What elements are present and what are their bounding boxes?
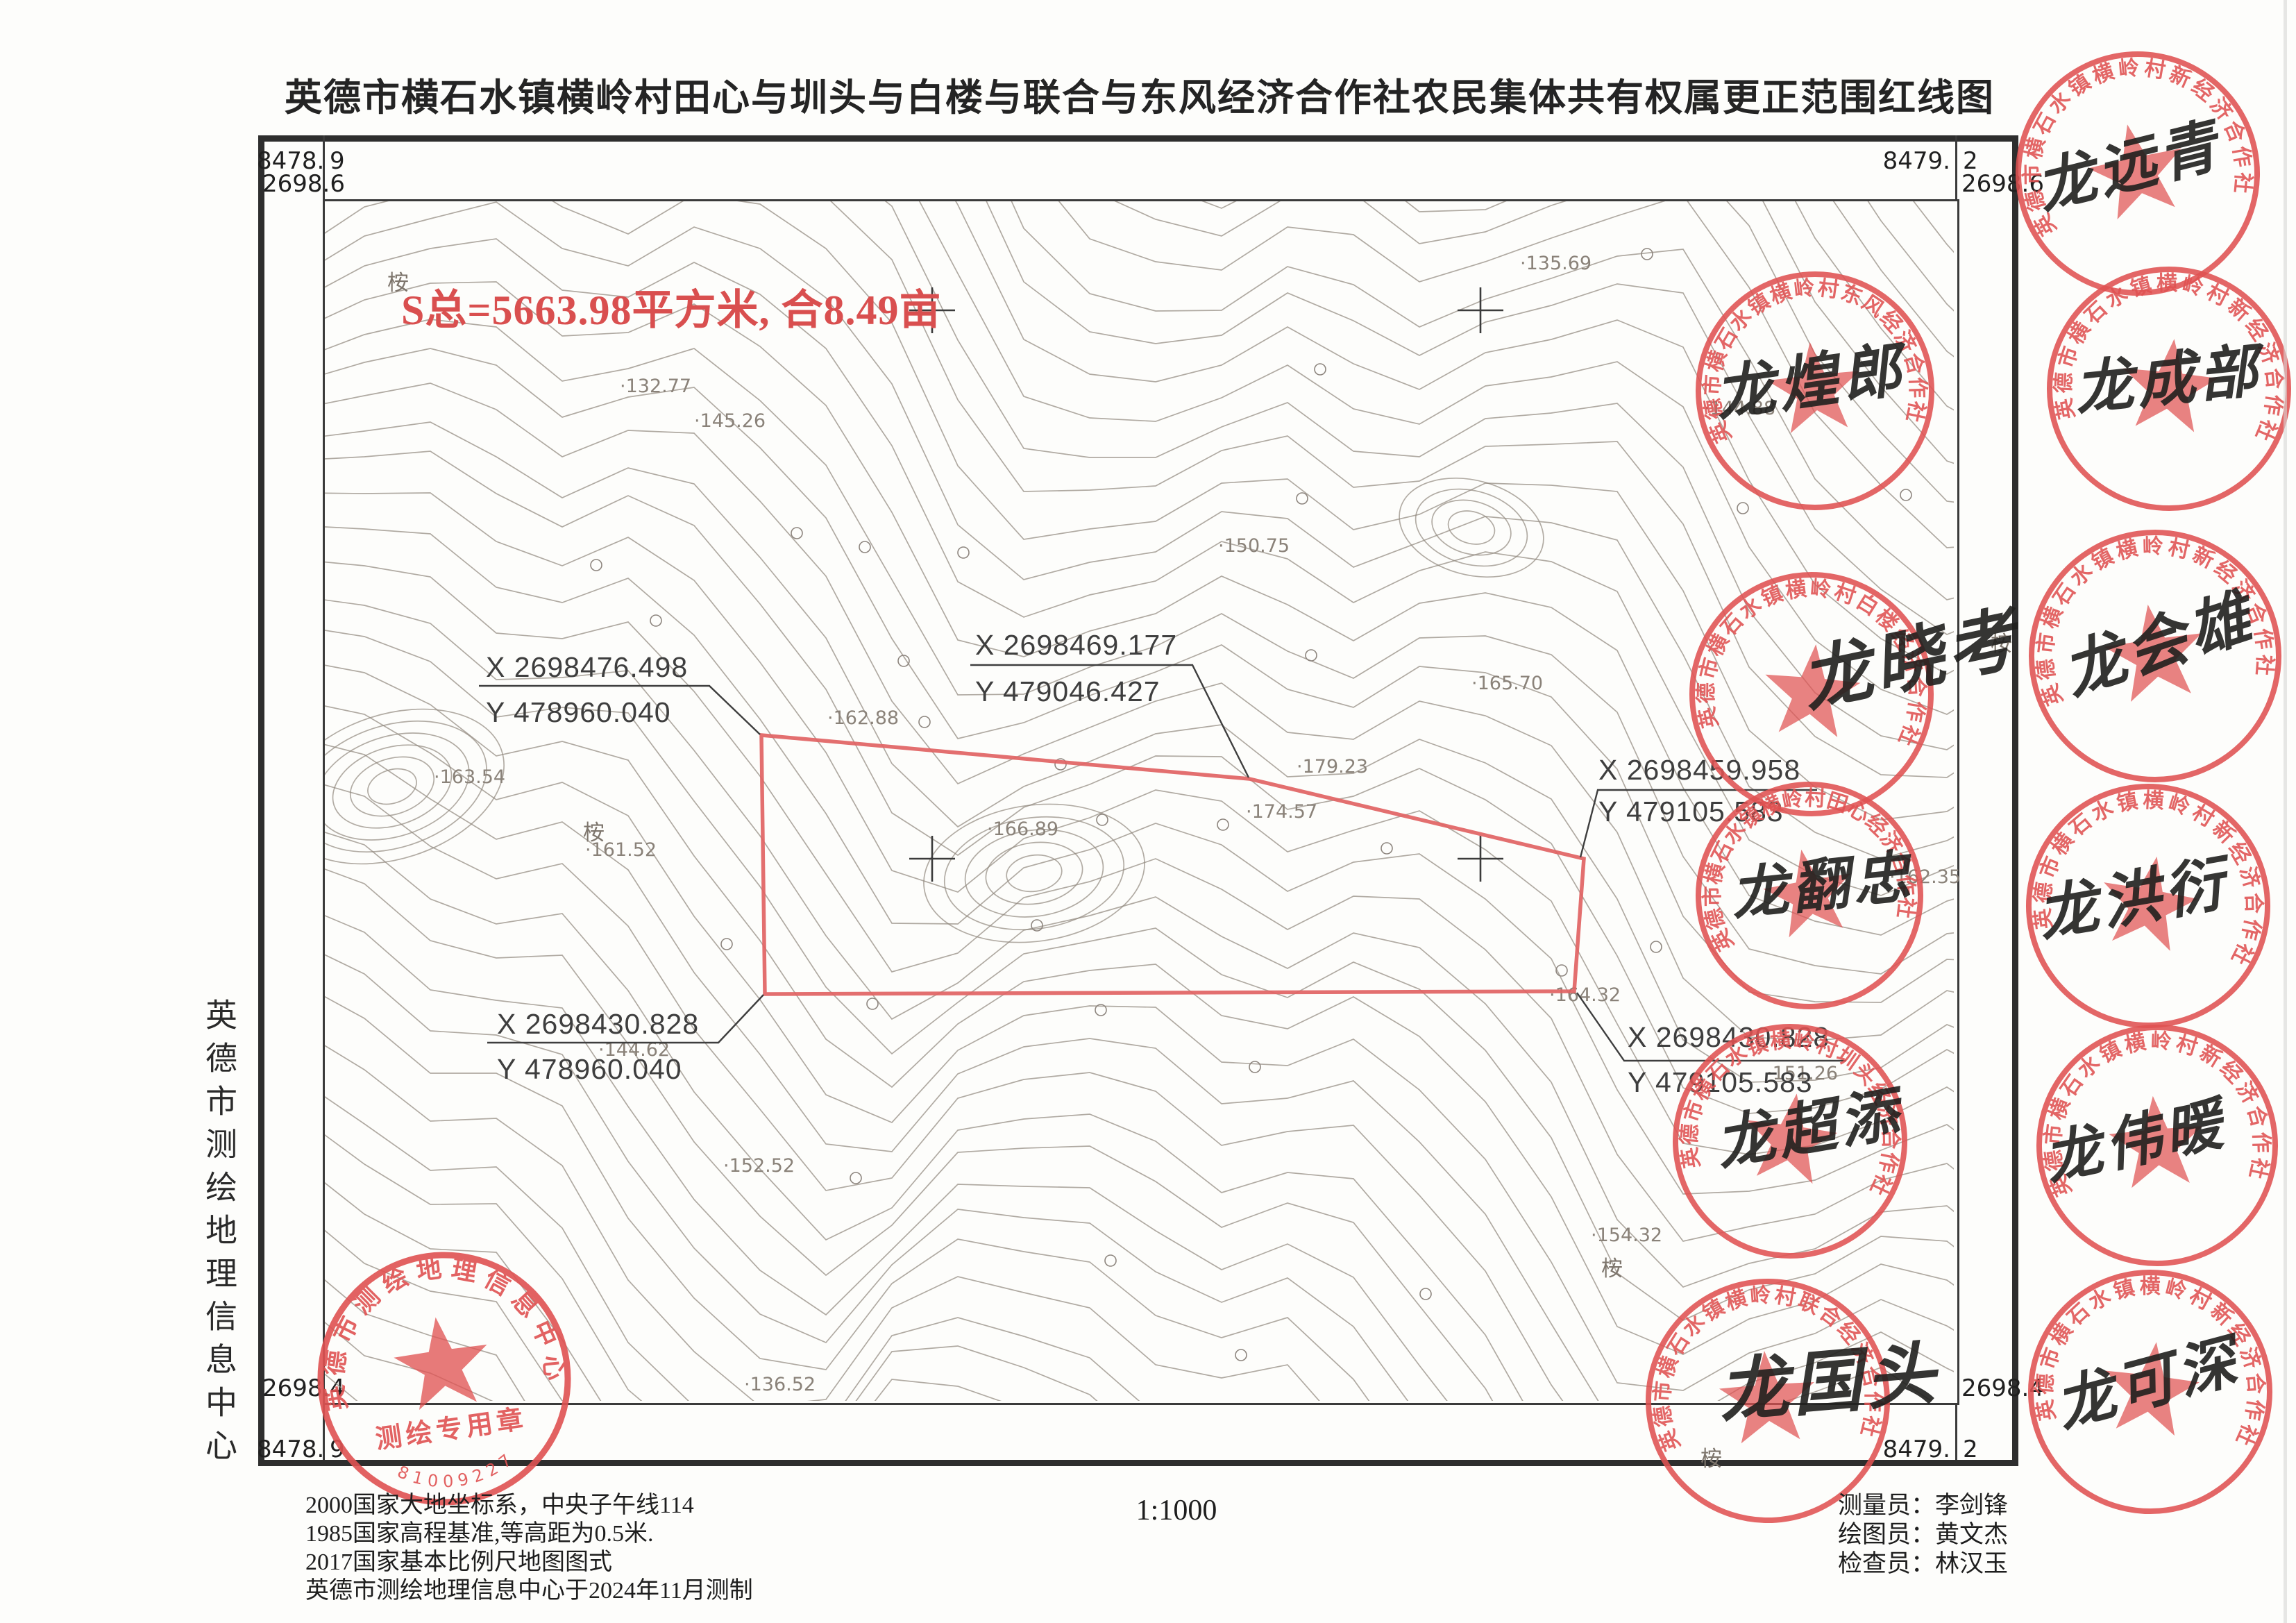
staff-block: 测量员：李剑锋 绘图员：黄文杰 检查员：林汉玉: [1838, 1491, 2008, 1579]
vertex-y-coordinate: Y 478960.040: [497, 1053, 682, 1085]
vertex-x-coordinate: X 2698476.498: [486, 651, 688, 683]
spot-height-label: ·136.52: [744, 1374, 816, 1395]
scanned-map-page: 英德市横石水镇横岭村田心与圳头与白楼与联合与东风经济合作社农民集体共有权属更正范…: [0, 0, 2296, 1623]
spot-height-label: ·174.57: [1246, 801, 1317, 823]
spot-height-label: ·150.75: [1218, 535, 1290, 557]
map-scale: 1:1000: [1100, 1494, 1253, 1527]
handwritten-signature: 龙国头: [1715, 1332, 1943, 1433]
spot-height-label: ·145.26: [694, 410, 766, 432]
draftsman-name: 绘图员：黄文杰: [1838, 1520, 2008, 1549]
parcel-boundary-redline: [761, 735, 1584, 994]
spot-height-label: ·179.23: [1297, 756, 1368, 777]
spot-height-label: ·135.69: [1520, 253, 1592, 274]
handwritten-signature: 龙会雄: [2054, 578, 2266, 709]
vertex-x-coordinate: X 2698459.958: [1598, 754, 1800, 786]
map-notes: 2000国家大地坐标系，中央子午线114 1985国家高程基准,等高距为0.5米…: [305, 1491, 753, 1605]
handwritten-signature: 龙煌郎: [1710, 333, 1914, 430]
spot-height-label: ·154.32: [1591, 1225, 1662, 1246]
spot-height-label: ·166.89: [987, 818, 1058, 840]
handwritten-signature: 龙翻忠: [1728, 843, 1917, 928]
vegetation-label: 桉: [1700, 1447, 1722, 1471]
spot-height-label: ·162.88: [827, 707, 899, 729]
topographic-map-canvas: ·135.69·132.77·145.26·150.75·165.70·162.…: [0, 0, 2296, 1623]
spot-height-label: ·164.32: [1549, 984, 1621, 1006]
note-line: 1985国家高程基准,等高距为0.5米.: [305, 1520, 753, 1548]
total-area-label: S总=5663.98平方米, 合8.49亩: [401, 276, 942, 337]
note-line: 2000国家大地坐标系，中央子午线114: [305, 1491, 753, 1520]
note-line: 2017国家基本比例尺地图图式: [305, 1548, 753, 1576]
note-line: 英德市测绘地理信息中心于2024年11月测制: [305, 1576, 753, 1605]
handwritten-signature: 龙可深: [2048, 1325, 2251, 1440]
seal-center-text: 测绘专用章: [373, 1404, 529, 1454]
vertex-x-coordinate: X 2698430.828: [497, 1008, 699, 1040]
spot-height-label: ·132.77: [620, 376, 691, 397]
seal-star-icon: [389, 1311, 495, 1412]
spot-height-label: ·163.54: [434, 766, 505, 788]
scan-edge-artifact: [2284, 0, 2287, 1623]
vegetation-label: 桉: [1601, 1256, 1623, 1281]
handwritten-signature: 龙成部: [2071, 335, 2270, 423]
surveyor-name: 测量员：李剑锋: [1838, 1491, 2008, 1520]
vertex-x-coordinate: X 2698469.177: [975, 629, 1177, 661]
vertex-y-coordinate: Y 478960.040: [486, 696, 671, 728]
vertex-y-coordinate: Y 479046.427: [975, 675, 1160, 707]
surveyor-official-seal: 英德市测绘地理信息中心测绘专用章81009227: [304, 1239, 584, 1518]
spot-height-label: ·165.70: [1471, 673, 1543, 694]
vegetation-label: 桉: [583, 821, 605, 845]
spot-height-label: ·152.52: [723, 1155, 795, 1177]
inspector-name: 检查员：林汉玉: [1838, 1549, 2008, 1579]
